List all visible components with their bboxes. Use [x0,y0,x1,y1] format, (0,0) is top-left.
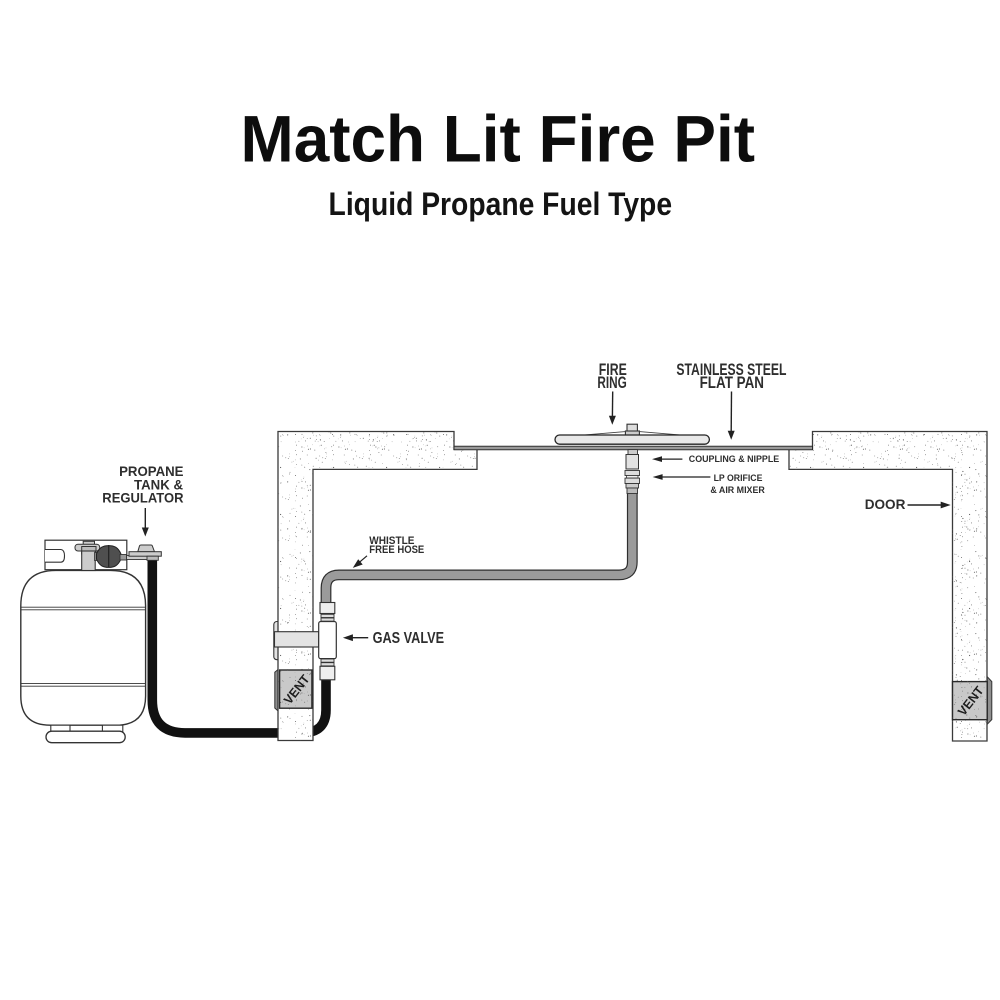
svg-text:FREE HOSE: FREE HOSE [369,544,424,556]
svg-text:COUPLING & NIPPLE: COUPLING & NIPPLE [689,454,779,464]
svg-text:LP ORIFICE: LP ORIFICE [714,473,763,483]
svg-text:Liquid Propane Fuel Type: Liquid Propane Fuel Type [329,186,673,222]
svg-text:Match Lit Fire Pit: Match Lit Fire Pit [241,102,756,176]
svg-text:DOOR: DOOR [865,496,906,512]
svg-text:REGULATOR: REGULATOR [102,491,183,506]
svg-text:RING: RING [597,374,626,392]
svg-text:GAS VALVE: GAS VALVE [373,630,445,647]
svg-text:FLAT PAN: FLAT PAN [700,374,764,392]
svg-text:& AIR MIXER: & AIR MIXER [710,485,765,495]
